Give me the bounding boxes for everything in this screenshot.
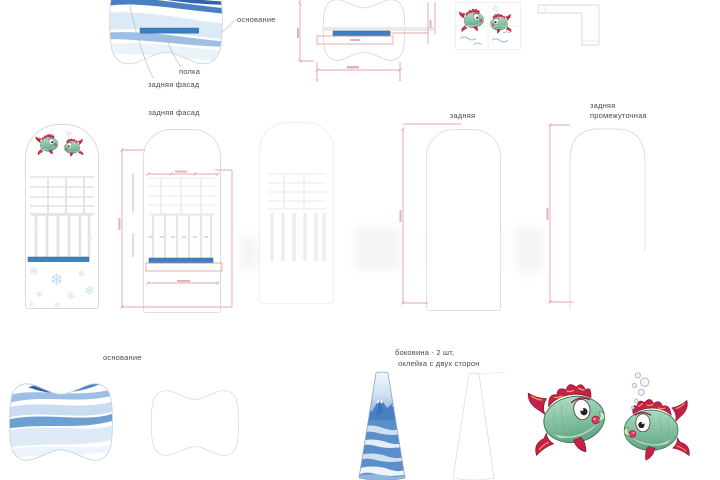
base-plan-colored	[8, 378, 114, 466]
svg-text:❄: ❄	[32, 222, 39, 231]
label-shelf: полка	[179, 67, 200, 76]
base-plan-outline	[150, 381, 240, 465]
svg-text:❄: ❄	[78, 269, 86, 279]
shelf-bar	[28, 257, 89, 262]
slats	[32, 215, 92, 257]
label-side-note-line1: боковина - 2 шт,	[395, 348, 454, 357]
shelf-bar	[333, 31, 390, 36]
svg-text:❄: ❄	[29, 264, 39, 278]
side-panel-outline	[448, 370, 506, 480]
side-panel-mountain-render	[356, 370, 408, 480]
fish-sticker	[455, 2, 521, 50]
fish-pair-illustration	[458, 5, 511, 33]
fish-pair-illustration	[35, 131, 83, 157]
svg-text:❄: ❄	[28, 299, 36, 308]
label-back-facade-top: задняя фасад	[148, 80, 199, 89]
panel-front-render: ❄ ❄ ❄ ❄ ❄ ❄ ❄ ❄ ❄ ❄	[25, 124, 99, 309]
svg-text:❄: ❄	[50, 272, 63, 289]
dimension-lines	[299, 0, 436, 80]
svg-text:❄: ❄	[54, 301, 61, 308]
base-top-drawing	[292, 0, 452, 86]
svg-text:❄: ❄	[86, 233, 94, 243]
svg-text:❄: ❄	[66, 289, 76, 303]
snowflakes: ❄ ❄ ❄ ❄ ❄ ❄ ❄ ❄ ❄ ❄	[28, 222, 95, 308]
svg-text:❄: ❄	[84, 283, 95, 298]
mountain-artwork	[356, 370, 408, 480]
dimension-overlay	[115, 100, 675, 315]
dimension-text-marks	[119, 171, 549, 283]
label-base-bottom: основание	[103, 353, 142, 362]
label-base-top: основание	[237, 15, 276, 24]
dimension-dots	[316, 79, 401, 81]
svg-text:❄: ❄	[36, 290, 43, 299]
cut-lines	[456, 3, 520, 49]
label-side-note-line2: оклейка с двух сторон	[398, 359, 480, 368]
wave-lines	[460, 32, 510, 45]
fish-pair-illustration-large	[526, 370, 704, 480]
blueprint-sheet: основание полка задняя фасад	[0, 0, 720, 480]
shelf-grid	[30, 177, 94, 214]
corner-profile-shape	[536, 3, 604, 49]
